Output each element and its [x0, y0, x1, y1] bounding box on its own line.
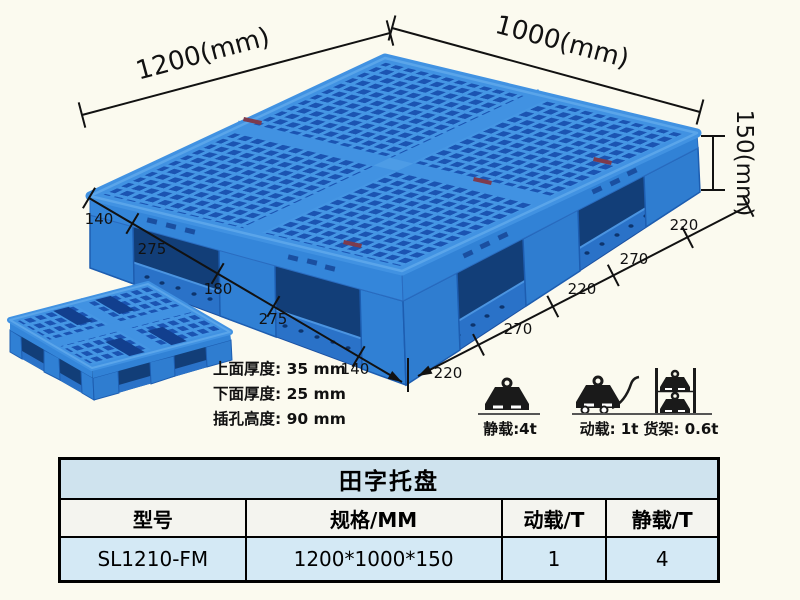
- right-seg-2: 270: [504, 320, 533, 338]
- height-dimension-label: 150(mm): [731, 110, 757, 217]
- dynamic-load-icon: [572, 377, 660, 414]
- thickness-annotations: 上面厚度: 35 mm 下面厚度: 25 mm 插孔高度: 90 mm: [213, 359, 346, 428]
- spec-table-data-row: SL1210-FM 1200*1000*150 1 4: [61, 538, 717, 580]
- right-seg-4: 270: [620, 250, 649, 268]
- cell-static-load: 4: [605, 538, 717, 580]
- left-seg-4: 275: [259, 310, 288, 328]
- right-seg-5: 220: [670, 216, 699, 234]
- right-seg-1: 220: [434, 364, 463, 382]
- bottom-thickness-note: 下面厚度: 25 mm: [213, 384, 346, 403]
- cell-model: SL1210-FM: [61, 538, 245, 580]
- static-load-label: 静载:4t: [483, 420, 537, 438]
- fork-hole-height-note: 插孔高度: 90 mm: [213, 409, 346, 428]
- left-seg-2: 275: [138, 240, 167, 258]
- spec-table: 田字托盘 型号 规格/MM 动载/T 静载/T SL1210-FM 1200*1…: [58, 457, 720, 583]
- depth-dimension-label: 1000(mm): [492, 10, 632, 74]
- spec-table-title: 田字托盘: [61, 460, 717, 500]
- left-seg-1: 140: [85, 210, 114, 228]
- cell-dynamic-load: 1: [501, 538, 606, 580]
- load-capacity-icons: 静载:4t 动载: 1t 货架: 0.6t: [478, 368, 718, 438]
- rack-load-label: 货架: 0.6t: [644, 420, 719, 438]
- right-seg-3: 220: [568, 280, 597, 298]
- static-load-icon: [478, 379, 540, 414]
- dynamic-load-label: 动载: 1t: [580, 420, 639, 438]
- header-dynamic-load: 动载/T: [501, 500, 606, 536]
- header-spec: 规格/MM: [245, 500, 501, 536]
- header-static-load: 静载/T: [605, 500, 717, 536]
- left-seg-3: 180: [204, 280, 233, 298]
- header-model: 型号: [61, 500, 245, 536]
- cell-spec: 1200*1000*150: [245, 538, 501, 580]
- spec-table-header-row: 型号 规格/MM 动载/T 静载/T: [61, 500, 717, 538]
- rack-load-icon: [648, 368, 712, 414]
- top-thickness-note: 上面厚度: 35 mm: [213, 359, 346, 378]
- pallet-diagram: 1200(mm) 1000(mm) 150(mm) 140 275 180 27…: [0, 0, 800, 455]
- width-dimension-label: 1200(mm): [133, 22, 273, 86]
